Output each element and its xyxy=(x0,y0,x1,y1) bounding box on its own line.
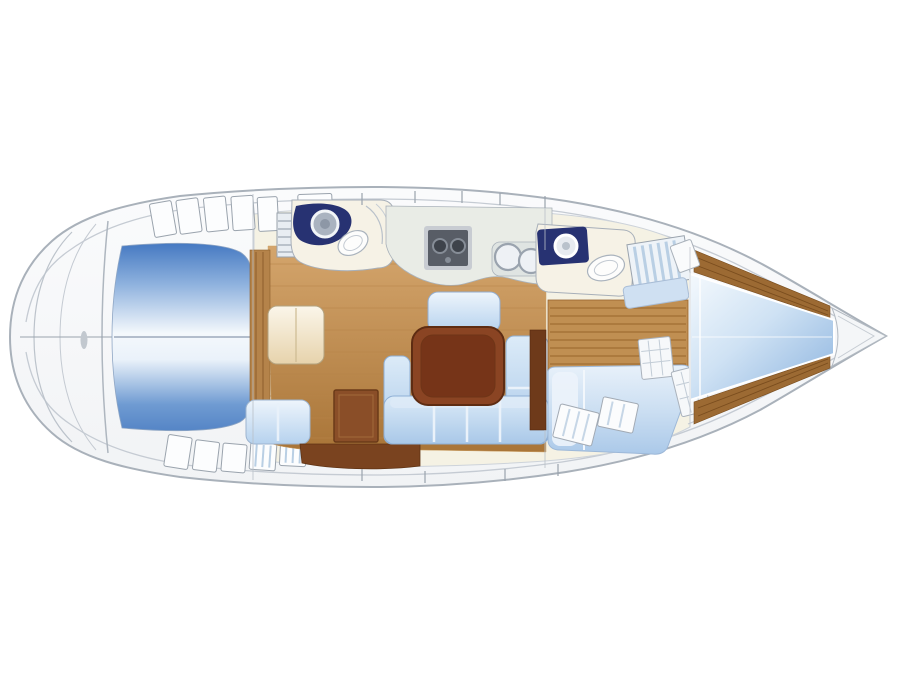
yacht-layout-plan xyxy=(0,0,900,675)
layout-drawing xyxy=(0,0,900,675)
galley-stove xyxy=(424,226,472,270)
v-berth xyxy=(688,250,886,424)
hull-side-locker xyxy=(300,444,420,469)
stern-fitting xyxy=(81,331,88,349)
aft-head xyxy=(291,200,394,271)
forward-bulkhead xyxy=(530,330,546,430)
storage-cabinet xyxy=(334,390,378,442)
cockpit xyxy=(112,243,252,430)
galley xyxy=(386,206,552,285)
forward-head xyxy=(536,224,635,296)
saloon-table xyxy=(412,327,504,405)
louver-panel-a xyxy=(638,336,674,379)
